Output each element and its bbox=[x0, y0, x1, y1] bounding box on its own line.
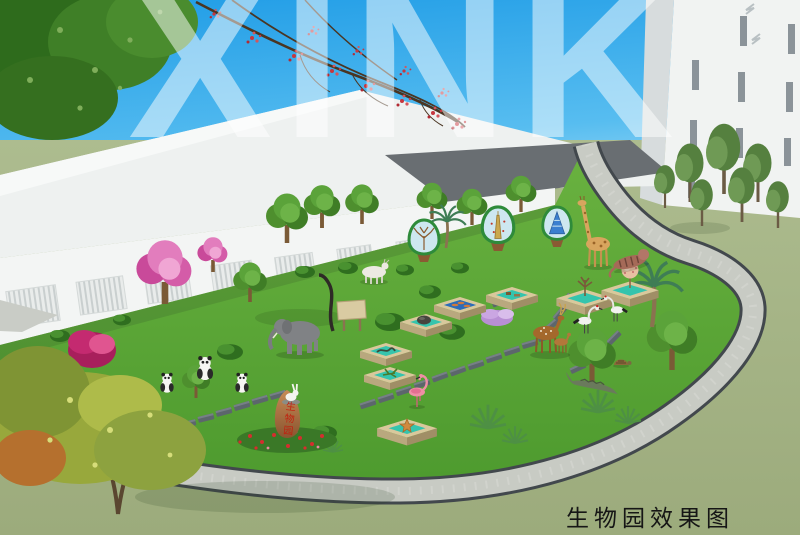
image-caption: 生物园效果图 bbox=[566, 499, 734, 533]
rendering-canvas: XINK 生物园 生物园效果图 bbox=[0, 0, 800, 535]
scene-svg bbox=[0, 0, 800, 535]
